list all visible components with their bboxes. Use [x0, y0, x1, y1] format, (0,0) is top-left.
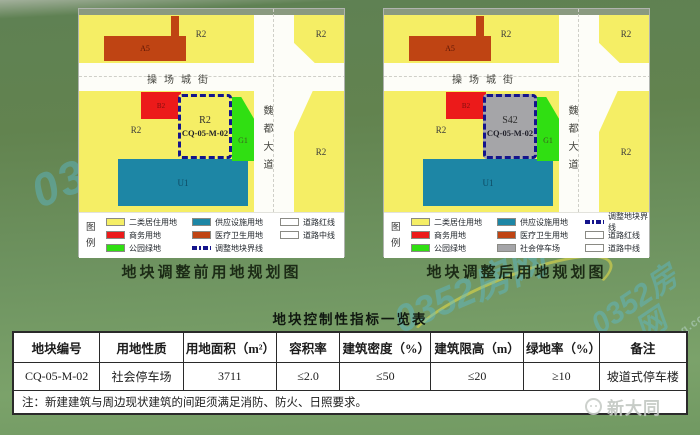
adjusted-plot-boundary: S42 CQ-05-M-02	[483, 94, 537, 159]
legend-item: 公园绿地	[411, 243, 482, 253]
header-cell: 建筑密度（%）	[340, 332, 431, 362]
legend-column: 供应设施用地 医疗卫生用地 社会停车场	[497, 217, 568, 253]
legend-title: 图例	[86, 220, 97, 252]
road-redline-swatch	[585, 231, 604, 239]
residential-swatch	[106, 218, 125, 226]
hospital-block: A5	[409, 36, 491, 61]
legend-column: 二类居住用地 商务用地 公园绿地	[411, 217, 482, 253]
map-panel-after: A5 B2 U1 G1 S42 CQ-05-M-02 R2 R2 R2 R2 操…	[383, 8, 650, 257]
header-cell: 用地面积（m²）	[183, 332, 276, 362]
header-cell: 容积率	[276, 332, 340, 362]
table-cell: ≥10	[523, 362, 599, 390]
park-green-label: G1	[238, 136, 248, 145]
legend-column: 道路红线 道路中线	[280, 217, 335, 240]
legend-item: 商务用地	[106, 230, 177, 240]
road-centerline-swatch	[585, 244, 604, 252]
table-cell: CQ-05-M-02	[13, 362, 100, 390]
r2-label: R2	[606, 147, 646, 157]
legend-label: 商务用地	[434, 230, 466, 241]
table-cell: 坡道式停车楼	[599, 362, 687, 390]
hospital-block: A5	[104, 36, 186, 61]
hospital-block-label: A5	[140, 44, 150, 53]
utility-swatch	[192, 218, 211, 226]
medical-swatch	[192, 231, 211, 239]
legend-item: 道路中线	[585, 243, 649, 253]
legend-before: 图例 二类居住用地 商务用地 公园绿地 供应设施用地 医疗卫生用地 调整地块界线…	[79, 212, 344, 258]
legend-label: 二类居住用地	[129, 217, 177, 228]
table-cell: ≤2.0	[276, 362, 340, 390]
header-cell: 建筑限高（m）	[431, 332, 524, 362]
r2-label: R2	[489, 29, 523, 39]
r2-label: R2	[606, 29, 646, 39]
legend-label: 商务用地	[129, 230, 161, 241]
legend-column: 供应设施用地 医疗卫生用地 调整地块界线	[192, 217, 263, 253]
business-block: B2	[446, 92, 486, 119]
legend-label: 道路中线	[303, 230, 335, 241]
street-name: 操场城街	[115, 71, 247, 86]
legend-item: 社会停车场	[497, 243, 568, 253]
map-before: A5 B2 U1 G1 R2 CQ-05-M-02 R2 R2 R2 R2 操场…	[79, 9, 344, 212]
r2-label: R2	[424, 125, 458, 135]
business-block-label: B2	[462, 102, 470, 110]
legend-label: 道路中线	[608, 243, 640, 254]
legend-item: 二类居住用地	[411, 217, 482, 227]
utility-block-label: U1	[483, 178, 494, 188]
logo-text: 新大同	[607, 394, 661, 419]
legend-label: 公园绿地	[129, 243, 161, 254]
header-cell: 地块编号	[13, 332, 100, 362]
table-data-row: CQ-05-M-02 社会停车场 3711 ≤2.0 ≤50 ≤20 ≥10 坡…	[13, 362, 687, 390]
plot-use-code: R2	[199, 115, 211, 126]
legend-item: 供应设施用地	[497, 217, 568, 227]
header-cell: 绿地率（%）	[523, 332, 599, 362]
boundary-dash-swatch	[192, 246, 211, 250]
header-cell: 用地性质	[100, 332, 184, 362]
legend-label: 供应设施用地	[520, 217, 568, 228]
residential-block-topright	[599, 15, 649, 63]
legend-label: 道路红线	[303, 217, 335, 228]
utility-block: U1	[118, 159, 248, 206]
legend-item: 医疗卫生用地	[497, 230, 568, 240]
r2-label: R2	[301, 29, 341, 39]
legend-after: 图例 二类居住用地 商务用地 公园绿地 供应设施用地 医疗卫生用地 社会停车场 …	[384, 212, 649, 258]
utility-block: U1	[423, 159, 553, 206]
legend-item: 调整地块界线	[585, 217, 649, 227]
caption-before: 地块调整前用地规划图	[78, 261, 345, 282]
legend-column: 二类居住用地 商务用地 公园绿地	[106, 217, 177, 253]
map-panel-before: A5 B2 U1 G1 R2 CQ-05-M-02 R2 R2 R2 R2 操场…	[78, 8, 345, 257]
legend-label: 供应设施用地	[215, 217, 263, 228]
park-swatch	[106, 244, 125, 252]
hospital-building-annex	[476, 16, 484, 37]
hospital-building-annex	[171, 16, 179, 37]
legend-item: 商务用地	[411, 230, 482, 240]
legend-label: 社会停车场	[520, 243, 560, 254]
caption-after: 地块调整后用地规划图	[383, 261, 650, 282]
page: 0352房网 www.0352fang.com 0352房网 0352房网 ww…	[0, 0, 700, 435]
legend-label: 医疗卫生用地	[215, 230, 263, 241]
plot-number: CQ-05-M-02	[487, 128, 533, 138]
table-title: 地块控制性指标一览表	[12, 308, 688, 328]
legend-item: 道路红线	[280, 217, 335, 227]
legend-label: 公园绿地	[434, 243, 466, 254]
avenue-name: 魏都大道	[564, 105, 579, 177]
r2-label: R2	[301, 147, 341, 157]
r2-label: R2	[119, 125, 153, 135]
adjusted-plot-boundary: R2 CQ-05-M-02	[178, 94, 232, 159]
hospital-block-label: A5	[445, 44, 455, 53]
legend-label: 道路红线	[608, 230, 640, 241]
medical-swatch	[497, 231, 516, 239]
header-cell: 备注	[599, 332, 687, 362]
legend-item: 公园绿地	[106, 243, 177, 253]
utility-block-label: U1	[178, 178, 189, 188]
legend-label: 调整地块界线	[215, 243, 263, 254]
plot-number: CQ-05-M-02	[182, 128, 228, 138]
business-block: B2	[141, 92, 181, 119]
table-cell: 社会停车场	[100, 362, 184, 390]
business-swatch	[106, 231, 125, 239]
park-green-label: G1	[543, 136, 553, 145]
avenue-name: 魏都大道	[259, 105, 274, 177]
park-swatch	[411, 244, 430, 252]
legend-item: 二类居住用地	[106, 217, 177, 227]
plot-use-code: S42	[502, 115, 518, 126]
legend-item: 医疗卫生用地	[192, 230, 263, 240]
table-cell: ≤20	[431, 362, 524, 390]
business-swatch	[411, 231, 430, 239]
road-centerline-swatch	[280, 231, 299, 239]
legend-item: 调整地块界线	[192, 243, 263, 253]
legend-item: 道路红线	[585, 230, 649, 240]
boundary-dash-swatch	[585, 220, 604, 224]
parking-swatch	[497, 244, 516, 252]
r2-label: R2	[184, 29, 218, 39]
legend-item: 道路中线	[280, 230, 335, 240]
residential-swatch	[411, 218, 430, 226]
table-cell: ≤50	[340, 362, 431, 390]
road-redline-swatch	[280, 218, 299, 226]
business-block-label: B2	[157, 102, 165, 110]
legend-label: 医疗卫生用地	[520, 230, 568, 241]
utility-swatch	[497, 218, 516, 226]
residential-block-topright	[294, 15, 344, 63]
table-header-row: 地块编号 用地性质 用地面积（m²） 容积率 建筑密度（%） 建筑限高（m） 绿…	[13, 332, 687, 362]
xindatong-logo: 新大同	[585, 394, 661, 419]
legend-title: 图例	[391, 220, 402, 252]
map-after: A5 B2 U1 G1 S42 CQ-05-M-02 R2 R2 R2 R2 操…	[384, 9, 649, 212]
legend-column: 调整地块界线 道路红线 道路中线	[585, 217, 649, 253]
street-name: 操场城街	[420, 71, 552, 86]
table-cell: 3711	[183, 362, 276, 390]
smiley-icon	[585, 398, 602, 415]
legend-label: 二类居住用地	[434, 217, 482, 228]
legend-item: 供应设施用地	[192, 217, 263, 227]
